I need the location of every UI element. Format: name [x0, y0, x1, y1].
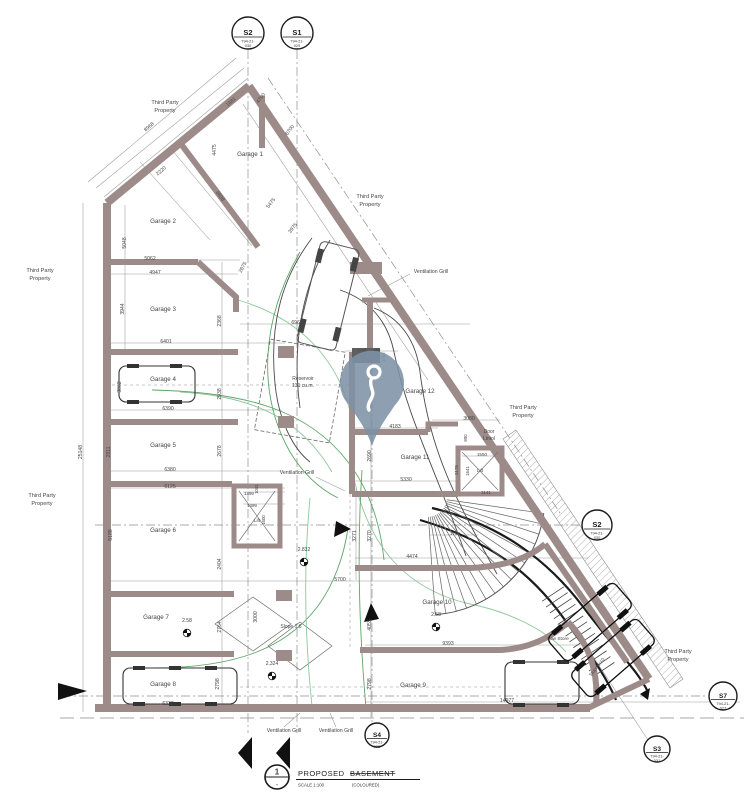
dimension-text: 2175	[454, 465, 459, 475]
dimension-text: 6380	[164, 467, 175, 473]
dimension-text: 6965	[291, 320, 302, 326]
dimension-text: 3000	[253, 611, 259, 622]
level-benchmark-symbol	[183, 629, 191, 637]
dimension-text: 5048	[122, 237, 128, 248]
dimension-text: 6322	[162, 701, 173, 707]
room-label: Garage 10	[422, 599, 452, 606]
plan-label: Property	[512, 413, 533, 419]
dimension-text: 4474	[406, 554, 417, 560]
dimension-text: 3270	[367, 530, 373, 541]
flow-arrow-left	[58, 683, 87, 700]
room-label: Garage 5	[150, 442, 176, 449]
dimension-text: 2675	[238, 261, 249, 274]
room-label: Garage 9	[400, 682, 426, 689]
dimension-text: 9393	[442, 641, 453, 647]
dimension-text: 1499	[247, 503, 257, 508]
dimension-text: 1499	[244, 491, 254, 496]
plan-label: Lift	[477, 468, 484, 473]
detail-number: 1	[275, 768, 280, 777]
flow-arrow-bottom-1	[238, 737, 252, 769]
room-label: Garage 11	[401, 454, 430, 461]
plan-label: Third Party	[356, 194, 384, 200]
drawing-sheet: S2 794-21- 030 S1 794-21- 029 S2 794-21-…	[0, 0, 749, 800]
svg-text:031: 031	[654, 758, 661, 763]
dimension-text: 8968	[143, 121, 156, 133]
dimension-text: 2798	[215, 678, 221, 689]
dimension-text: 2764	[217, 621, 223, 632]
svg-text:S2: S2	[592, 520, 601, 529]
dimension-text: 2690	[367, 450, 373, 461]
room-label: Garage 6	[150, 527, 176, 534]
dimension-text: 1248	[358, 347, 368, 352]
plan-label: 131 cu.m.	[292, 383, 314, 389]
plan-label: Property	[31, 501, 52, 507]
svg-text:S7: S7	[719, 693, 727, 700]
car-garage-4	[119, 364, 195, 404]
plan-label: Third Party	[151, 100, 179, 106]
svg-text:027: 027	[720, 706, 727, 711]
dimension-text: 5330	[400, 477, 411, 483]
dimension-text: 890	[463, 434, 468, 442]
room-label: Garage 3	[150, 306, 176, 313]
svg-text:S1: S1	[292, 28, 301, 37]
svg-text:S3: S3	[653, 746, 661, 753]
dimension-text: 2811	[106, 446, 112, 457]
dimension-text: 1750	[450, 531, 461, 536]
flow-arrow-centre	[334, 521, 351, 537]
section-marker-s7: S7 794-21- 027	[709, 682, 737, 711]
room-label: Garage 1	[237, 151, 263, 158]
plan-label: Property	[667, 657, 688, 663]
plan-label: Ventilation Grill	[267, 728, 302, 734]
level-value: 2.324	[266, 661, 279, 667]
drawing-title-main: PROPOSED	[298, 769, 345, 778]
dimension-text: 2938	[217, 388, 223, 399]
plan-label: Lintol	[483, 436, 495, 442]
room-label: Garage 2	[150, 218, 176, 225]
dimension-text: 6390	[162, 406, 173, 412]
dimension-text: 1141	[481, 490, 491, 495]
dimension-text: 1641	[465, 466, 470, 476]
section-marker-s3: S3 794-21- 031	[644, 736, 670, 763]
dimension-text: 3944	[120, 303, 126, 314]
section-marker-s2-right: S2 794-21- 030	[582, 510, 612, 540]
flow-arrow-ramp-up	[364, 603, 379, 622]
dimension-text: 25148	[78, 445, 84, 459]
room-label: Garage 7	[143, 614, 169, 621]
dimension-text: 6700	[284, 124, 296, 137]
dimension-text: 4475	[212, 144, 218, 155]
plan-label: Lift	[254, 518, 261, 523]
level-benchmark-symbol	[268, 672, 276, 680]
room-label: Garage 4	[150, 376, 176, 383]
dimension-text: 3271	[352, 530, 358, 541]
level-benchmark-symbol	[432, 623, 440, 631]
drawing-title-struck: BASEMENT	[350, 769, 395, 778]
dimension-text: 1550	[477, 452, 488, 457]
dimension-text: 6401	[160, 339, 171, 345]
level-value: 2.58	[182, 618, 192, 624]
level-benchmark-symbol	[300, 558, 308, 566]
svg-text:S2: S2	[243, 28, 252, 37]
plan-label: Third Party	[26, 268, 54, 274]
plan-label: Ventilation Grill	[319, 728, 354, 734]
svg-text:030: 030	[245, 43, 252, 48]
room-label: Garage 12	[405, 388, 435, 395]
dimension-text: 5700	[334, 577, 345, 583]
dimension-text: 5188	[108, 529, 114, 540]
plan-label: Third Party	[509, 405, 537, 411]
plan-label: Ventilation Grill	[280, 470, 315, 476]
plan-label: Third Party	[664, 649, 692, 655]
plan-label: Low Store	[547, 636, 569, 642]
section-marker-s1-top: S1 794-21- 029	[281, 17, 313, 49]
title-block: 1 - PROPOSED BASEMENT SCALE 1:100 (COLOU…	[265, 765, 420, 789]
section-marker-s4: S4 794-21- 032	[365, 723, 389, 749]
svg-text:S4: S4	[373, 732, 381, 739]
flow-arrow-bottom-2	[276, 737, 290, 769]
floor-plan-drawing: S2 794-21- 030 S1 794-21- 029 S2 794-21-…	[0, 0, 749, 800]
level-value: 2.832	[298, 547, 311, 553]
dimension-text: 1081	[254, 484, 259, 494]
drawing-note: (COLOURED)	[352, 783, 380, 788]
plan-label: Third Party	[28, 493, 56, 499]
car-turning-outline	[295, 240, 361, 351]
ramp-retaining-hatch	[503, 430, 683, 688]
plan-label: Property	[154, 108, 175, 114]
svg-text:030: 030	[594, 535, 601, 540]
dimension-text: 2798	[367, 678, 373, 689]
car-garage-9	[505, 660, 579, 707]
plan-label: Door	[484, 429, 495, 435]
dimension-text: 2678	[217, 445, 223, 456]
svg-text:032: 032	[374, 744, 381, 749]
dimension-text: 5062	[144, 256, 155, 262]
plan-label: Slope 1:6	[280, 624, 301, 630]
dimension-text: 14977	[500, 698, 514, 704]
plan-label: Property	[359, 202, 380, 208]
svg-text:029: 029	[294, 43, 301, 48]
dimension-text: 4947	[149, 270, 160, 276]
slope-diamonds	[215, 597, 332, 670]
plan-label: Property	[29, 276, 50, 282]
dimension-text: 2368	[217, 315, 223, 326]
dimension-text: 4055	[367, 619, 373, 630]
room-label: Garage 8	[150, 681, 176, 688]
dimension-text: 4183	[389, 424, 400, 430]
dimension-text: 6125	[164, 484, 175, 490]
plan-label: Reservoir	[292, 376, 314, 382]
dimension-text: 5475	[265, 197, 277, 210]
section-marker-s2-top: S2 794-21- 030	[232, 17, 264, 49]
flow-arrow-ramp-end	[640, 688, 650, 700]
plan-label: Ventilation Grill	[414, 269, 449, 275]
dimension-text: 2404	[217, 558, 223, 569]
dimension-text: 1600	[261, 515, 266, 525]
drawing-scale: SCALE 1:100	[298, 783, 325, 788]
dimension-text: 3080	[463, 416, 474, 422]
dimension-text: 3062	[117, 381, 123, 392]
level-value: 2.58	[431, 612, 441, 618]
dimension-text: 3975	[287, 222, 299, 235]
